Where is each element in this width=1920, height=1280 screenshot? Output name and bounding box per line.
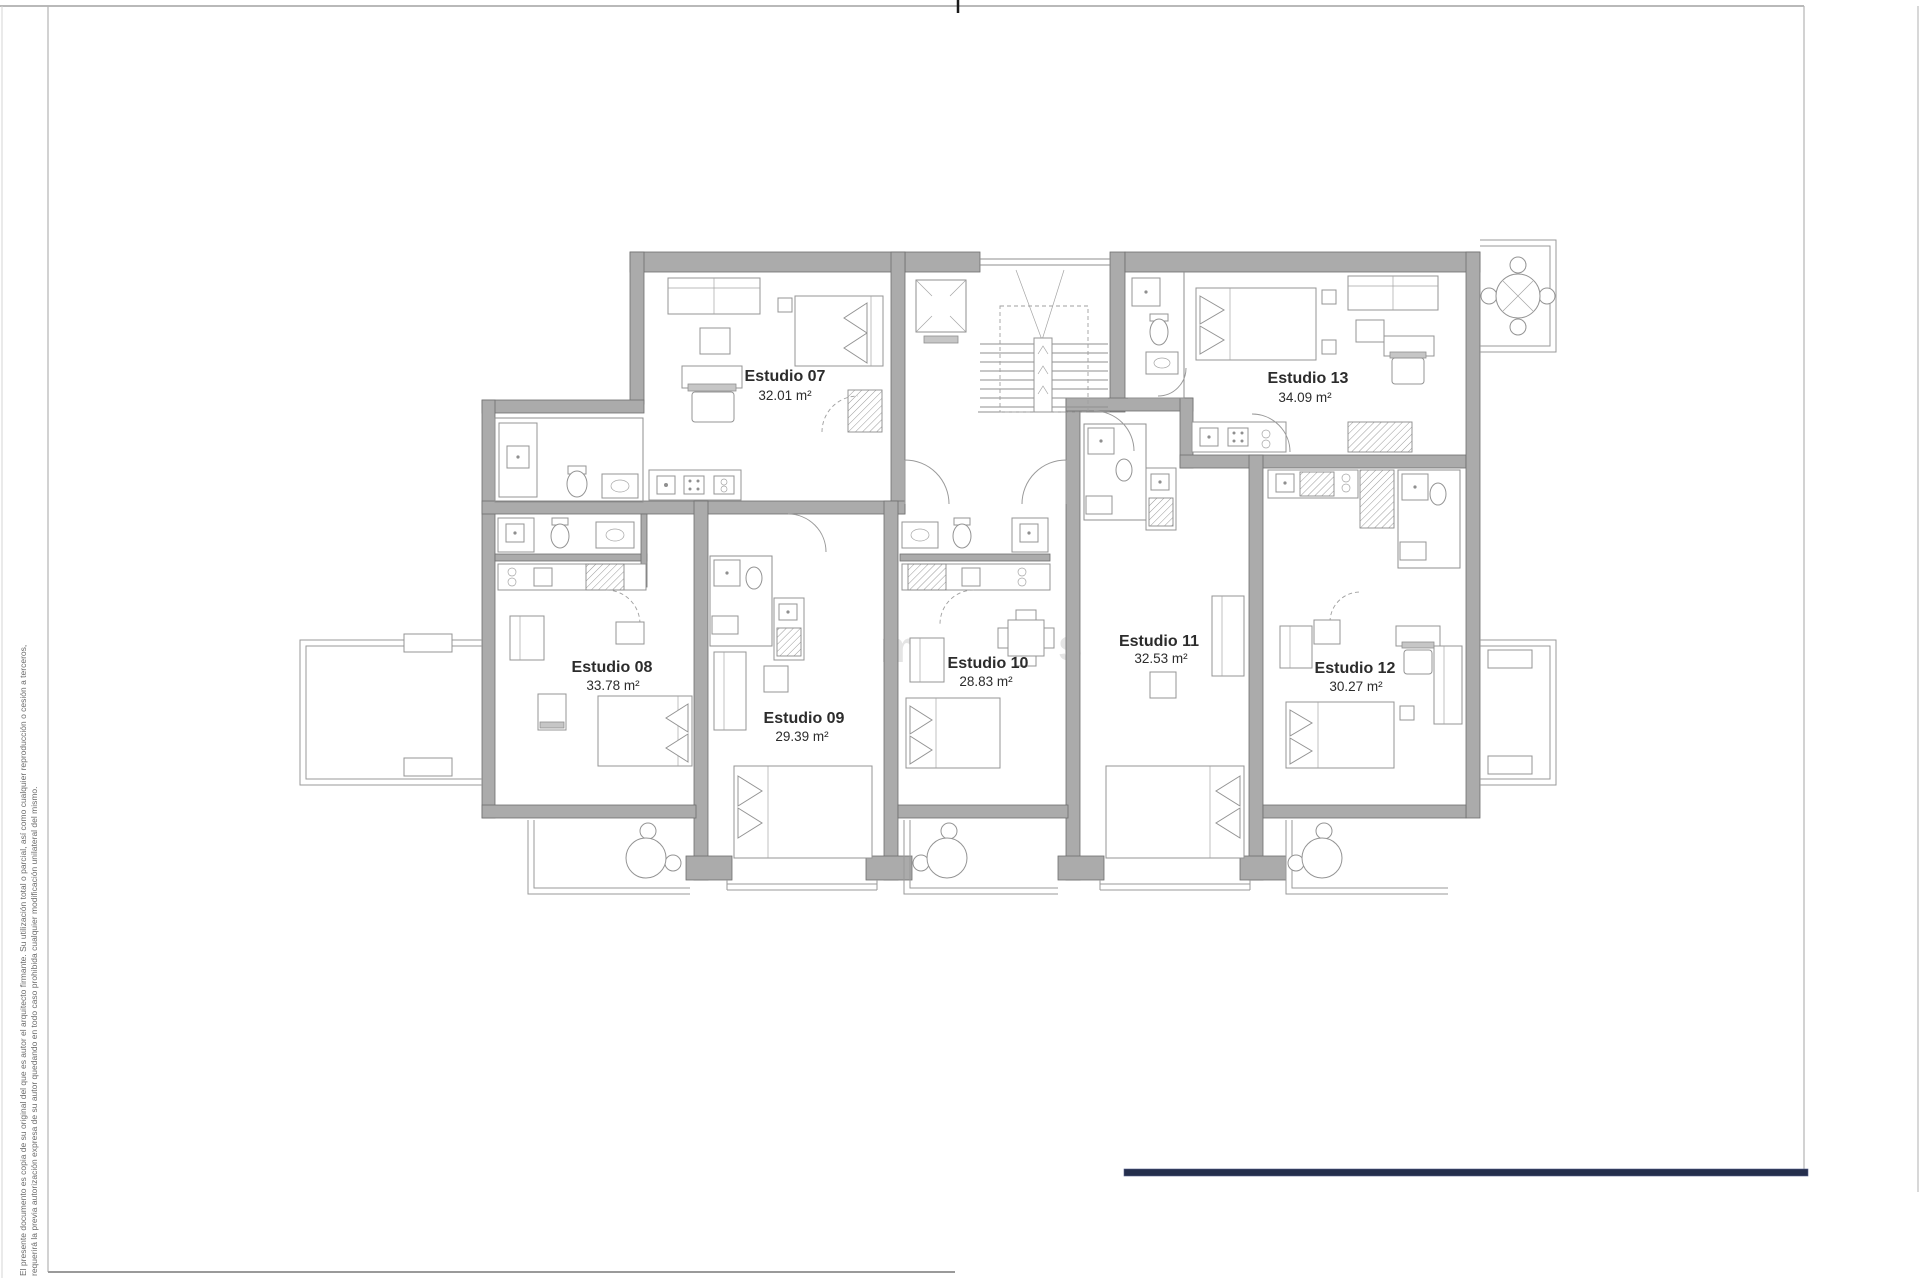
toilet — [551, 524, 569, 548]
kitchen — [498, 564, 646, 590]
sofa — [714, 652, 746, 730]
chair — [1404, 650, 1432, 674]
bathroom — [710, 556, 772, 646]
armchair — [1280, 626, 1312, 668]
unit-area: 33.78 m² — [586, 678, 640, 693]
side-table — [616, 622, 644, 644]
unit-area: 30.27 m² — [1329, 679, 1383, 694]
kitchen — [649, 470, 741, 500]
balconette-estudio-09 — [727, 880, 877, 890]
chair — [941, 823, 957, 839]
chair — [1510, 257, 1526, 273]
planter — [1488, 756, 1532, 774]
bathroom — [495, 418, 643, 502]
round-table — [1302, 838, 1342, 878]
sink — [602, 474, 638, 498]
hob — [1149, 498, 1173, 526]
toilet — [1150, 319, 1168, 345]
unit-estudio-13: Estudio 13 34.09 m² — [1128, 272, 1438, 452]
stair-stringer — [1034, 338, 1052, 412]
planter — [404, 758, 452, 776]
round-table — [626, 838, 666, 878]
bed — [1196, 288, 1316, 360]
coffee-table — [1356, 320, 1384, 342]
disclaimer-line-1: El presente documento es copia de su ori… — [18, 576, 29, 1276]
unit-label: Estudio 09 — [764, 710, 845, 727]
balcony-estudio-10 — [904, 820, 1058, 894]
balcony-estudio-12 — [1286, 820, 1448, 894]
armchair — [510, 616, 544, 660]
chair — [665, 855, 681, 871]
round-table — [927, 838, 967, 878]
balconette-estudio-11 — [1100, 880, 1250, 890]
chair — [1539, 288, 1555, 304]
side-table — [1314, 620, 1340, 644]
bed — [734, 766, 872, 858]
elevator — [916, 280, 966, 343]
kitchen — [774, 598, 804, 660]
unit-label: Estudio 11 — [1119, 633, 1199, 650]
sink — [1400, 542, 1426, 560]
bed — [1286, 702, 1394, 768]
wardrobe — [1348, 422, 1412, 452]
unit-label: Estudio 12 — [1315, 660, 1396, 677]
hob — [908, 564, 946, 590]
elevator-door — [924, 336, 958, 343]
nightstand — [1400, 706, 1414, 720]
sink — [596, 522, 634, 548]
unit-area: 34.09 m² — [1278, 390, 1332, 405]
planter — [404, 634, 452, 652]
armchair — [910, 638, 944, 682]
toilet — [746, 567, 762, 589]
balcony-top-right — [1480, 240, 1556, 352]
unit-label: Estudio 10 — [948, 655, 1029, 672]
chair — [692, 392, 734, 422]
bed — [795, 296, 883, 366]
unit-label: Estudio 07 — [745, 368, 826, 385]
wardrobe — [1360, 470, 1394, 528]
balcony-left — [300, 634, 482, 785]
toilet — [1116, 459, 1132, 481]
architect-disclaimer: El presente documento es copia de su ori… — [18, 576, 40, 1276]
kitchen — [1146, 468, 1176, 530]
balcony-estudio-08 — [528, 820, 690, 894]
sheet: m s — [0, 0, 1920, 1280]
sofa — [1212, 596, 1244, 676]
kitchen — [902, 564, 1050, 590]
sink — [712, 616, 738, 634]
unit-estudio-12: Estudio 12 30.27 m² — [1268, 470, 1462, 768]
unit-estudio-11: Estudio 11 32.53 m² — [1084, 411, 1244, 858]
nightstand — [1322, 290, 1336, 304]
bed — [1106, 766, 1244, 858]
bathroom — [1398, 470, 1460, 568]
chair — [1316, 823, 1332, 839]
unit-estudio-09: Estudio 09 29.39 m² — [710, 514, 872, 858]
unit-area: 32.53 m² — [1134, 651, 1188, 666]
kitchen — [1192, 422, 1286, 452]
hob — [586, 564, 624, 590]
chair — [1510, 319, 1526, 335]
chair — [640, 823, 656, 839]
hob — [1300, 472, 1334, 496]
table — [1008, 620, 1044, 656]
sink — [902, 522, 938, 548]
sink — [1086, 496, 1112, 514]
toilet — [1430, 483, 1446, 505]
nightstand — [778, 298, 792, 312]
side-table — [764, 666, 788, 692]
sheet-frame — [0, 0, 1918, 1278]
navy-title-bar-line — [1124, 1169, 1808, 1176]
disclaimer-line-2: requerirá la previa autorización expresa… — [29, 576, 40, 1276]
balcony-mid-right — [1480, 640, 1556, 785]
toilet — [567, 471, 587, 497]
unit-estudio-07: Estudio 07 32.01 m² — [495, 278, 883, 502]
planter — [1488, 650, 1532, 668]
unit-area: 28.83 m² — [959, 674, 1013, 689]
unit-label: Estudio 08 — [572, 659, 653, 676]
chair — [1481, 288, 1497, 304]
floor-plan-drawing: m s — [0, 0, 1920, 1280]
sink — [1146, 352, 1178, 374]
coffee-table — [700, 328, 730, 354]
bathroom — [1128, 272, 1184, 398]
unit-area: 29.39 m² — [775, 729, 829, 744]
hob — [777, 628, 801, 656]
kitchen — [1268, 470, 1358, 498]
sofa — [1434, 646, 1462, 724]
unit-label: Estudio 13 — [1268, 370, 1349, 387]
toilet — [953, 524, 971, 548]
bathroom — [1084, 424, 1146, 520]
chair — [1392, 358, 1424, 384]
nightstand — [1322, 340, 1336, 354]
side-table — [1150, 672, 1176, 698]
unit-area: 32.01 m² — [758, 388, 812, 403]
